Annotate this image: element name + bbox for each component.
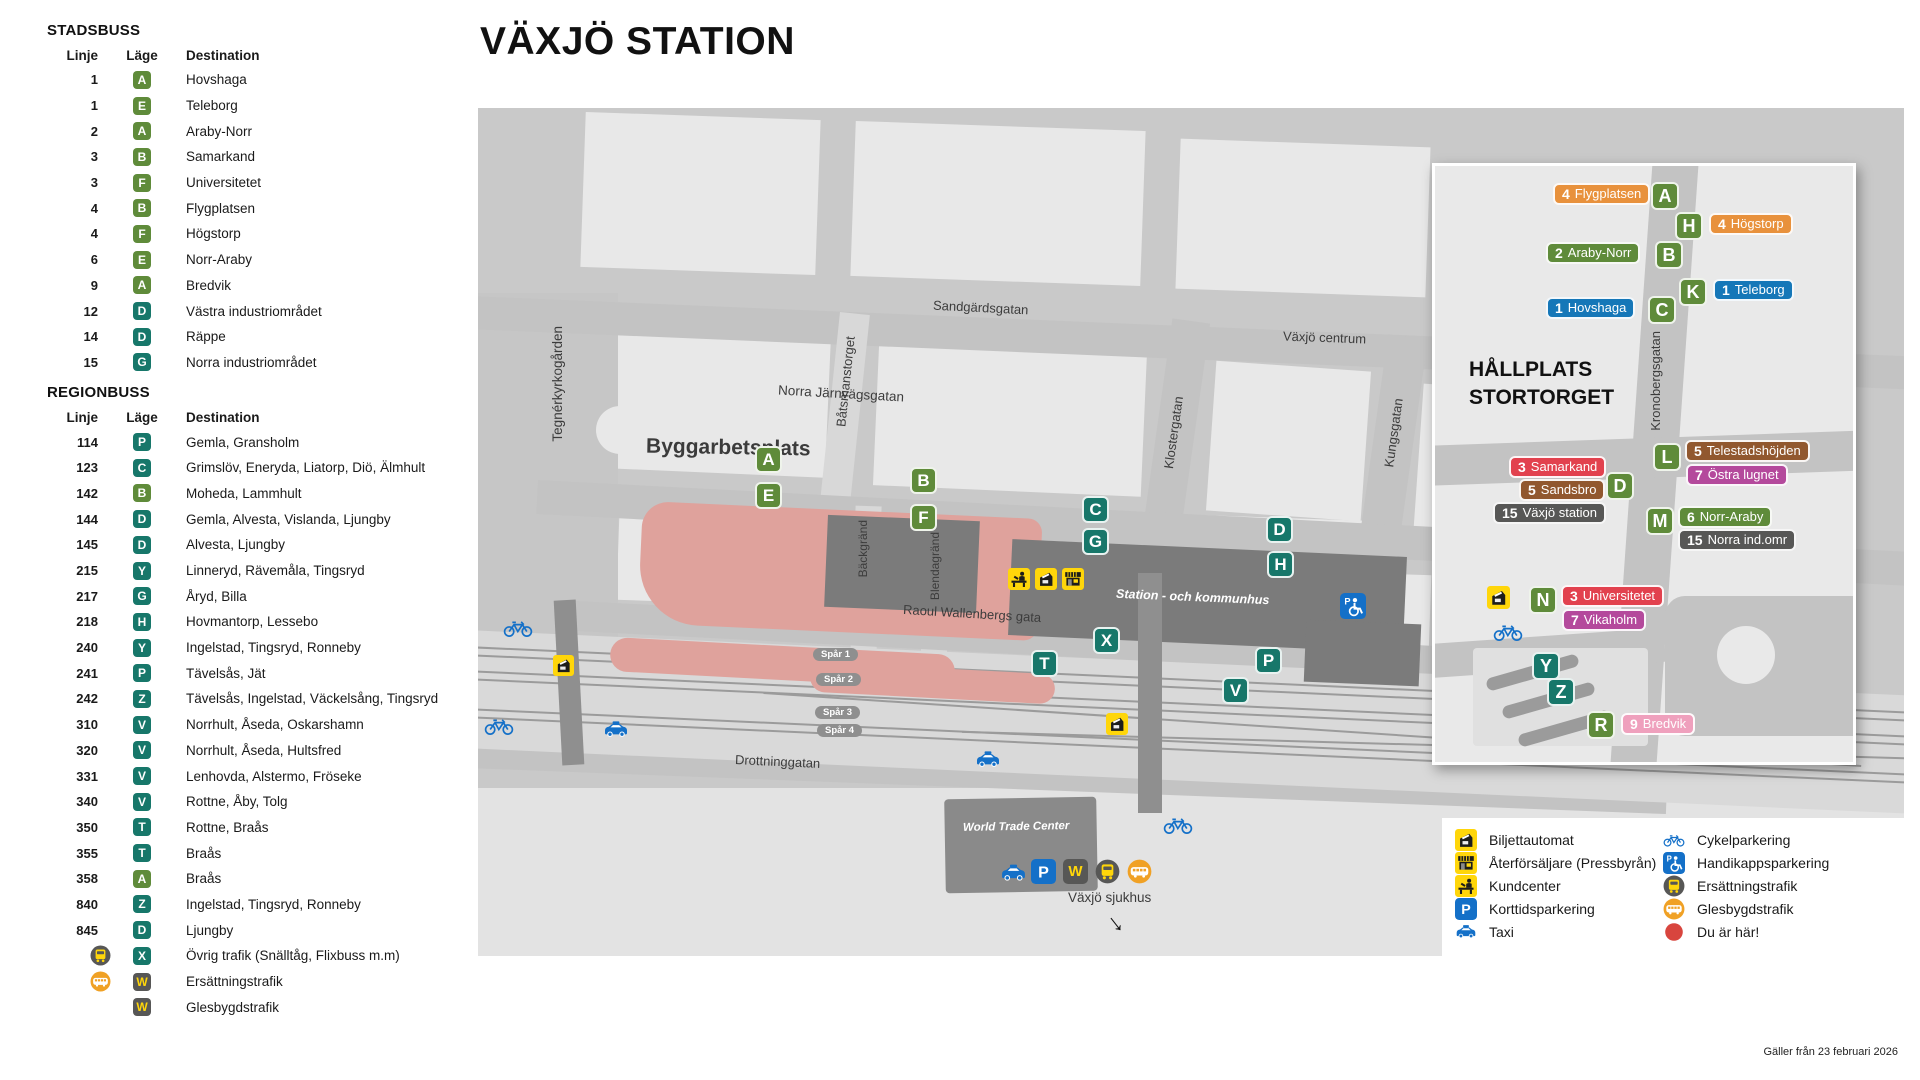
line-mode-icon xyxy=(90,95,111,116)
inset-stop-K: K xyxy=(1679,278,1707,306)
legend-label: Handikappsparkering xyxy=(1697,855,1829,871)
line-mode-icon xyxy=(90,326,111,347)
line-number: 4 xyxy=(38,201,98,216)
bus-line-row: 9 A Bredvik xyxy=(38,273,458,299)
bay-badge: A xyxy=(133,71,151,89)
bus-line-row: 2 A Araby-Norr xyxy=(38,118,458,144)
legend-item: Kundcenter xyxy=(1455,874,1656,897)
line-number: 358 xyxy=(38,871,98,886)
legend-item: Taxi xyxy=(1455,920,1656,943)
track-label-spar2: Spår 2 xyxy=(816,673,861,686)
bay-badge: D xyxy=(133,328,151,346)
bay-badge: A xyxy=(133,276,151,294)
line-number: 320 xyxy=(38,743,98,758)
line-mode-icon xyxy=(90,766,111,787)
legend-label: Kundcenter xyxy=(1489,878,1561,894)
line-destination: Högstorp xyxy=(186,226,241,241)
svg-text:P: P xyxy=(1038,863,1049,881)
line-number: 144 xyxy=(38,512,98,527)
line-mode-icon xyxy=(90,509,111,530)
bus-line-row: 840 Z Ingelstad, Tingsryd, Ronneby xyxy=(38,892,458,918)
legend-item: Du är här! xyxy=(1663,920,1829,943)
map-stop-X: X xyxy=(1093,627,1120,654)
bay-badge: P xyxy=(133,664,151,682)
col-lage: Läge xyxy=(116,410,168,425)
line-destination: Grimslöv, Eneryda, Liatorp, Diö, Älmhult xyxy=(186,460,425,475)
col-destination: Destination xyxy=(186,410,260,425)
street-label-sandgardsgatan: Sandgärdsgatan xyxy=(933,298,1029,318)
bay-badge: D xyxy=(133,302,151,320)
bus-line-row: 4 F Högstorp xyxy=(38,221,458,247)
ticket-machine-icon xyxy=(1106,713,1128,735)
building xyxy=(824,515,980,613)
regionbuss-heading: REGIONBUSS xyxy=(47,384,458,401)
line-mode-icon xyxy=(90,637,111,658)
bay-badge: W xyxy=(133,998,151,1016)
bay-badge: V xyxy=(133,741,151,759)
line-destination: Rottne, Braås xyxy=(186,820,269,835)
bicycle-parking-icon xyxy=(503,618,533,638)
legend-icon: P xyxy=(1455,898,1477,920)
inset-stop-C: C xyxy=(1648,296,1676,324)
dest-label-flygplatsen: 4Flygplatsen xyxy=(1553,183,1650,205)
bay-badge: F xyxy=(133,225,151,243)
map-stop-T: T xyxy=(1031,650,1058,677)
city-block xyxy=(850,121,1145,286)
line-destination: Norrhult, Åseda, Hultsfred xyxy=(186,743,341,758)
bus-line-row: 14 D Räppe xyxy=(38,324,458,350)
ticket-machine-icon xyxy=(1035,568,1057,590)
track-label-spar4: Spår 4 xyxy=(817,724,862,737)
dest-label-bredvik: 9Bredvik xyxy=(1621,713,1695,735)
svg-text:P: P xyxy=(1461,902,1470,918)
line-destination: Västra industriområdet xyxy=(186,304,322,319)
svg-text:P: P xyxy=(1667,854,1672,863)
line-number: 242 xyxy=(38,691,98,706)
legend-label: Cykelparkering xyxy=(1697,832,1790,848)
bay-badge: G xyxy=(133,353,151,371)
line-number: 1 xyxy=(38,98,98,113)
bicycle-parking-icon xyxy=(1493,622,1523,642)
line-destination: Flygplatsen xyxy=(186,201,255,216)
stadsbuss-table: 1 A Hovshaga 1 E Teleborg xyxy=(38,67,458,375)
inset-stop-H: H xyxy=(1675,212,1703,240)
legend-right-column: Cykelparkering P Handikappsparkering Ers… xyxy=(1663,828,1829,943)
legend-item: Återförsäljare (Pressbyrån) xyxy=(1455,851,1656,874)
line-mode-icon xyxy=(90,69,111,90)
inset-stop-A: A xyxy=(1651,182,1679,210)
line-number: 1 xyxy=(38,72,98,87)
map-stop-E: E xyxy=(755,482,782,509)
line-destination: Linneryd, Rävemåla, Tingsryd xyxy=(186,563,365,578)
legend-label: Ersättningstrafik xyxy=(1697,878,1797,894)
bus-line-row: 1 A Hovshaga xyxy=(38,67,458,93)
bay-badge: A xyxy=(133,122,151,140)
taxi-icon xyxy=(603,721,629,738)
bicycle-parking-icon xyxy=(1163,815,1193,835)
line-mode-icon xyxy=(90,920,111,941)
col-destination: Destination xyxy=(186,48,260,63)
line-mode-icon xyxy=(90,146,111,167)
dest-label-samarkand: 3Samarkand xyxy=(1509,456,1606,478)
line-mode-icon xyxy=(90,997,111,1018)
city-block xyxy=(1206,361,1371,521)
line-destination: Alvesta, Ljungby xyxy=(186,537,285,552)
city-block xyxy=(1175,139,1430,298)
line-mode-icon xyxy=(90,249,111,270)
line-mode-icon xyxy=(90,198,111,219)
line-mode-icon xyxy=(90,301,111,322)
bus-line-row: 240 Y Ingelstad, Tingsryd, Ronneby xyxy=(38,635,458,661)
map-legend: Biljettautomat Återförsäljare (Pressbyrå… xyxy=(1442,818,1910,980)
bus-line-row: 340 V Rottne, Åby, Tolg xyxy=(38,789,458,815)
line-number: 350 xyxy=(38,820,98,835)
dest-label-araby-norr: 2Araby-Norr xyxy=(1546,242,1640,264)
line-destination: Hovmantorp, Lessebo xyxy=(186,614,318,629)
bus-line-row: 142 B Moheda, Lammhult xyxy=(38,481,458,507)
bus-line-row: 310 V Norrhult, Åseda, Oskarshamn xyxy=(38,712,458,738)
line-number: 340 xyxy=(38,794,98,809)
map-stop-V: V xyxy=(1222,677,1249,704)
line-destination: Tävelsås, Ingelstad, Väckelsång, Tingsry… xyxy=(186,691,438,706)
bus-line-row: 241 P Tävelsås, Jät xyxy=(38,660,458,686)
bus-line-row: 215 Y Linneryd, Rävemåla, Tingsryd xyxy=(38,558,458,584)
bay-badge: V xyxy=(133,793,151,811)
map-stop-F: F xyxy=(910,504,937,531)
svg-text:P: P xyxy=(1344,596,1350,606)
bay-badge: V xyxy=(133,716,151,734)
bus-line-row: 358 A Braås xyxy=(38,866,458,892)
legend-icon xyxy=(1455,921,1477,943)
line-destination: Rottne, Åby, Tolg xyxy=(186,794,288,809)
bus-line-row: 3 B Samarkand xyxy=(38,144,458,170)
bus-line-row: W Ersättningstrafik xyxy=(38,969,458,995)
line-destination: Norr-Araby xyxy=(186,252,252,267)
building-label-world-trade-center: World Trade Center xyxy=(963,820,1069,834)
dest-label-hogstorp: 4Högstorp xyxy=(1709,213,1793,235)
line-mode-icon xyxy=(90,560,111,581)
legend-left-column: Biljettautomat Återförsäljare (Pressbyrå… xyxy=(1455,828,1656,943)
line-number: 215 xyxy=(38,563,98,578)
map-stop-P: P xyxy=(1255,647,1282,674)
line-destination: Norrhult, Åseda, Oskarshamn xyxy=(186,717,364,732)
line-mode-icon xyxy=(90,611,111,632)
vaxjo-station-map-page: { "title": "VÄXJÖ STATION", "footer": "G… xyxy=(0,0,1920,1080)
street-label-backgrand: Bäckgränd xyxy=(856,520,870,577)
legend-icon xyxy=(1663,898,1685,920)
bus-line-row: 12 D Västra industriområdet xyxy=(38,298,458,324)
legend-icon xyxy=(1455,875,1477,897)
bus-line-row: 114 P Gemla, Gransholm xyxy=(38,429,458,455)
line-mode-icon xyxy=(90,817,111,838)
taxi-icon xyxy=(1000,864,1027,882)
area-label-byggarbetsplats: Byggarbetsplats xyxy=(646,435,811,462)
line-number: 241 xyxy=(38,666,98,681)
line-number: 14 xyxy=(38,329,98,344)
track-label-spar3: Spår 3 xyxy=(815,706,860,719)
map-stop-G: G xyxy=(1082,528,1109,555)
bus-line-row: 6 E Norr-Araby xyxy=(38,247,458,273)
col-linje: Linje xyxy=(38,48,98,63)
roundabout xyxy=(596,406,644,454)
inset-stop-N: N xyxy=(1529,586,1557,614)
line-number: 142 xyxy=(38,486,98,501)
bay-badge: H xyxy=(133,613,151,631)
line-number: 840 xyxy=(38,897,98,912)
line-destination: Samarkand xyxy=(186,149,255,164)
legend-item: Biljettautomat xyxy=(1455,828,1656,851)
line-destination: Ljungby xyxy=(186,923,233,938)
dest-label-vaxjo-station: 15Växjö station xyxy=(1493,502,1606,524)
line-number: 114 xyxy=(38,435,98,450)
line-destination: Teleborg xyxy=(186,98,238,113)
dest-label-telestadshojden: 5Telestadshöjden xyxy=(1685,440,1810,462)
line-destination: Araby-Norr xyxy=(186,124,252,139)
bus-line-row: 3 F Universitetet xyxy=(38,170,458,196)
line-destination: Bredvik xyxy=(186,278,231,293)
col-linje: Linje xyxy=(38,410,98,425)
line-mode-icon xyxy=(90,843,111,864)
bay-badge: A xyxy=(133,870,151,888)
inset-stop-B: B xyxy=(1655,241,1683,269)
dest-label-ostra-lugnet: 7Östra lugnet xyxy=(1686,464,1788,486)
line-number: 3 xyxy=(38,149,98,164)
bay-badge: B xyxy=(133,484,151,502)
bay-badge: G xyxy=(133,587,151,605)
inset-title: HÅLLPLATS STORTORGET xyxy=(1469,356,1614,413)
line-destination: Braås xyxy=(186,871,221,886)
bus-line-row: 15 G Norra industriområdet xyxy=(38,350,458,376)
line-mode-icon xyxy=(90,275,111,296)
line-destination: Gemla, Alvesta, Vislanda, Ljungby xyxy=(186,512,391,527)
glesbygdstrafik-icon xyxy=(1127,859,1152,884)
line-number: 4 xyxy=(38,226,98,241)
w-bay-icon: W xyxy=(1063,859,1088,884)
area-label-vaxjo-sjukhus: Växjö sjukhus xyxy=(1068,890,1151,905)
line-destination: Ingelstad, Tingsryd, Ronneby xyxy=(186,640,361,655)
bus-line-row: W Glesbygdstrafik xyxy=(38,994,458,1020)
legend-icon xyxy=(1663,829,1685,851)
line-destination: Glesbygdstrafik xyxy=(186,1000,279,1015)
line-mode-icon xyxy=(90,483,111,504)
line-number: 15 xyxy=(38,355,98,370)
bus-line-row: 144 D Gemla, Alvesta, Vislanda, Ljungby xyxy=(38,506,458,532)
bay-badge: P xyxy=(133,433,151,451)
ersattningstrafik-icon xyxy=(1095,859,1120,884)
line-destination: Räppe xyxy=(186,329,226,344)
bay-badge: B xyxy=(133,148,151,166)
line-mode-icon xyxy=(90,172,111,193)
line-destination: Ingelstad, Tingsryd, Ronneby xyxy=(186,897,361,912)
legend-label: Taxi xyxy=(1489,924,1514,940)
bus-line-row: 242 Z Tävelsås, Ingelstad, Väckelsång, T… xyxy=(38,686,458,712)
dest-label-sandsbro: 5Sandsbro xyxy=(1519,479,1605,501)
line-mode-icon xyxy=(90,663,111,684)
bay-badge: E xyxy=(133,97,151,115)
bus-line-row: 355 T Braås xyxy=(38,840,458,866)
parking-icon: P xyxy=(1031,859,1056,884)
line-mode-icon xyxy=(90,688,111,709)
line-number: 2 xyxy=(38,124,98,139)
taxi-icon xyxy=(975,751,1001,768)
bay-badge: T xyxy=(133,818,151,836)
kiosk-icon xyxy=(1062,568,1084,590)
line-mode-icon xyxy=(90,894,111,915)
bay-badge: Z xyxy=(133,690,151,708)
line-destination: Lenhovda, Alstermo, Fröseke xyxy=(186,769,362,784)
legend-label: Korttidsparkering xyxy=(1489,901,1595,917)
page-title: VÄXJÖ STATION xyxy=(480,20,795,64)
line-mode-icon xyxy=(90,586,111,607)
bus-line-row: 217 G Åryd, Billa xyxy=(38,583,458,609)
bay-badge: D xyxy=(133,921,151,939)
col-lage: Läge xyxy=(116,48,168,63)
line-mode-icon xyxy=(90,971,111,992)
bus-line-row: X Övrig trafik (Snälltåg, Flixbuss m.m) xyxy=(38,943,458,969)
legend-item: Cykelparkering xyxy=(1663,828,1829,851)
bicycle-parking-icon xyxy=(484,716,514,736)
bay-badge: D xyxy=(133,536,151,554)
track-crossing-bridge xyxy=(1138,573,1162,813)
legend-item: P Handikappsparkering xyxy=(1663,851,1829,874)
inset-stop-Z: Z xyxy=(1547,678,1575,706)
bus-line-sidebar: STADSBUSS Linje Läge Destination 1 A Hov… xyxy=(38,22,458,1020)
legend-label: Du är här! xyxy=(1697,924,1759,940)
map-stop-H: H xyxy=(1267,551,1294,578)
bay-badge: X xyxy=(133,947,151,965)
line-number: 12 xyxy=(38,304,98,319)
line-destination: Åryd, Billa xyxy=(186,589,247,604)
line-mode-icon xyxy=(90,791,111,812)
bus-line-row: 123 C Grimslöv, Eneryda, Liatorp, Diö, Ä… xyxy=(38,455,458,481)
map-stop-D: D xyxy=(1266,516,1293,543)
line-number: 217 xyxy=(38,589,98,604)
line-number: 3 xyxy=(38,175,98,190)
legend-item: P Korttidsparkering xyxy=(1455,897,1656,920)
map-stop-C: C xyxy=(1082,496,1109,523)
ticket-machine-icon xyxy=(553,655,574,676)
line-destination: Moheda, Lammhult xyxy=(186,486,302,501)
legend-icon xyxy=(1663,921,1685,943)
line-number: 355 xyxy=(38,846,98,861)
legend-label: Biljettautomat xyxy=(1489,832,1574,848)
bay-badge: B xyxy=(133,199,151,217)
stadsbuss-column-headers: Linje Läge Destination xyxy=(38,43,458,67)
inset-stop-R: R xyxy=(1587,711,1615,739)
line-number: 218 xyxy=(38,614,98,629)
bus-line-row: 845 D Ljungby xyxy=(38,917,458,943)
bay-badge: W xyxy=(133,973,151,991)
legend-item: Ersättningstrafik xyxy=(1663,874,1829,897)
line-number: 123 xyxy=(38,460,98,475)
building xyxy=(1304,620,1421,687)
line-mode-icon xyxy=(90,534,111,555)
legend-icon: P xyxy=(1663,852,1685,874)
legend-icon xyxy=(1663,875,1685,897)
line-number: 845 xyxy=(38,923,98,938)
legend-item: Glesbygdstrafik xyxy=(1663,897,1829,920)
bus-line-row: 331 V Lenhovda, Alstermo, Fröseke xyxy=(38,763,458,789)
inset-stop-Y: Y xyxy=(1532,652,1560,680)
dest-label-norra-ind-omr: 15Norra ind.omr xyxy=(1678,529,1796,551)
line-destination: Ersättningstrafik xyxy=(186,974,283,989)
city-block xyxy=(580,112,820,275)
bus-line-row: 4 B Flygplatsen xyxy=(38,195,458,221)
bay-badge: F xyxy=(133,174,151,192)
regionbuss-column-headers: Linje Läge Destination xyxy=(38,405,458,429)
legend-label: Glesbygdstrafik xyxy=(1697,901,1793,917)
line-destination: Övrig trafik (Snälltåg, Flixbuss m.m) xyxy=(186,948,400,963)
bay-badge: V xyxy=(133,767,151,785)
bay-badge: Z xyxy=(133,895,151,913)
inset-stop-D: D xyxy=(1606,472,1634,500)
line-mode-icon xyxy=(90,457,111,478)
inset-stop-M: M xyxy=(1646,507,1674,535)
track-label-spar1: Spår 1 xyxy=(813,648,858,661)
line-mode-icon xyxy=(90,714,111,735)
kundcenter-icon xyxy=(1008,568,1030,590)
handicap-parking-icon: P xyxy=(1340,593,1366,619)
line-mode-icon xyxy=(90,945,111,966)
line-destination: Gemla, Gransholm xyxy=(186,435,299,450)
bus-line-row: 218 H Hovmantorp, Lessebo xyxy=(38,609,458,635)
bay-badge: C xyxy=(133,459,151,477)
validity-date: Gäller från 23 februari 2026 xyxy=(1763,1046,1898,1058)
bay-badge: E xyxy=(133,251,151,269)
line-number: 145 xyxy=(38,537,98,552)
legend-icon xyxy=(1455,829,1477,851)
map-stop-B: B xyxy=(910,467,937,494)
street-label-tegnerkyrkogarden: Tegnérkyrkogården xyxy=(550,326,565,442)
line-number: 240 xyxy=(38,640,98,655)
line-number: 310 xyxy=(38,717,98,732)
dest-label-teleborg: 1Teleborg xyxy=(1713,279,1794,301)
inset-street-label: Kronobergsgatan xyxy=(1648,331,1663,431)
bus-line-row: 145 D Alvesta, Ljungby xyxy=(38,532,458,558)
bus-line-row: 350 T Rottne, Braås xyxy=(38,815,458,841)
line-mode-icon xyxy=(90,740,111,761)
line-mode-icon xyxy=(90,432,111,453)
bay-badge: D xyxy=(133,510,151,528)
line-destination: Norra industriområdet xyxy=(186,355,317,370)
bay-badge: T xyxy=(133,844,151,862)
bus-line-row: 320 V Norrhult, Åseda, Hultsfred xyxy=(38,738,458,764)
bus-line-row: 1 E Teleborg xyxy=(38,93,458,119)
ticket-machine-icon xyxy=(1487,586,1510,609)
legend-label: Återförsäljare (Pressbyrån) xyxy=(1489,855,1656,871)
line-number: 331 xyxy=(38,769,98,784)
area-label-vaxjo-centrum: Växjö centrum xyxy=(1283,329,1367,347)
regionbuss-table: 114 P Gemla, Gransholm 123 C Grimslöv, E… xyxy=(38,429,458,1020)
inset-stop-L: L xyxy=(1653,443,1681,471)
inset-roundabout xyxy=(1717,626,1775,684)
line-destination: Hovshaga xyxy=(186,72,247,87)
line-mode-icon xyxy=(90,352,111,373)
line-destination: Universitetet xyxy=(186,175,261,190)
line-mode-icon xyxy=(90,223,111,244)
line-mode-icon xyxy=(90,121,111,142)
bay-badge: Y xyxy=(133,562,151,580)
dest-label-vikaholm: 7Vikaholm xyxy=(1562,609,1646,631)
dest-label-norr-araby: 6Norr-Araby xyxy=(1678,506,1772,528)
line-number: 9 xyxy=(38,278,98,293)
dest-label-hovshaga: 1Hovshaga xyxy=(1546,297,1635,319)
hallplats-stortorget-inset: HÅLLPLATS STORTORGET Kronobergsgatan A H… xyxy=(1432,163,1856,765)
bay-badge: Y xyxy=(133,639,151,657)
line-number: 6 xyxy=(38,252,98,267)
street-label-blendagrand: Blendagränd xyxy=(928,532,942,600)
stadsbuss-heading: STADSBUSS xyxy=(47,22,458,39)
